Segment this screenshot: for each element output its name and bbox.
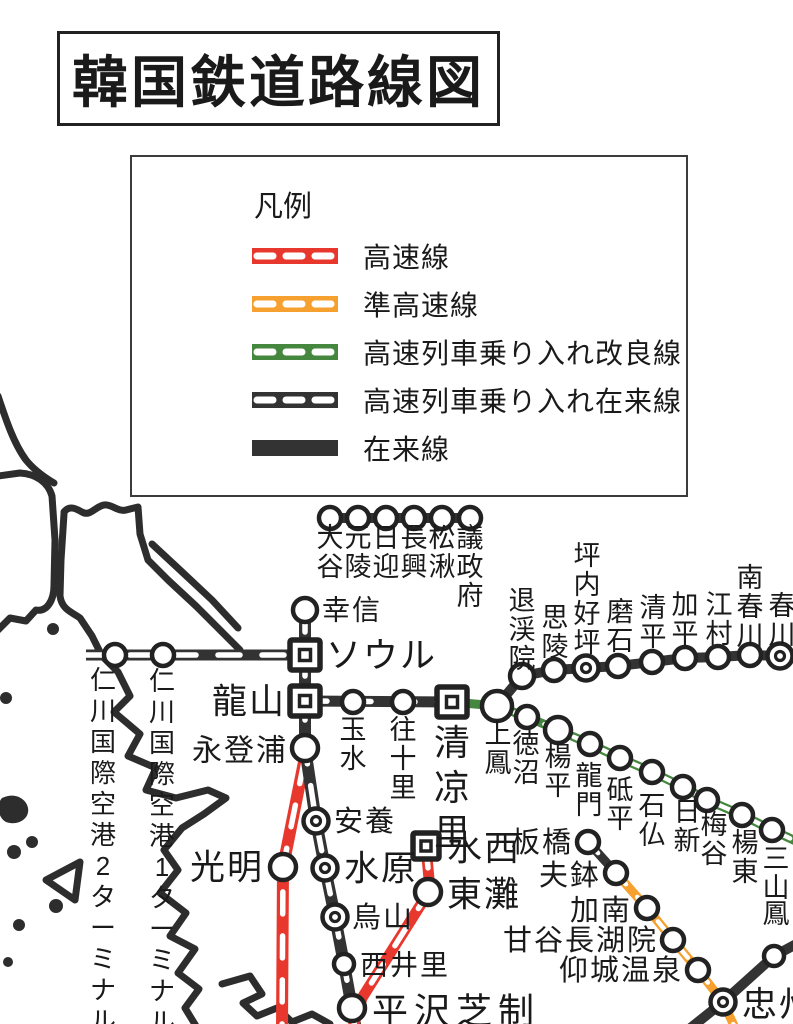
island [49,899,63,913]
station-marker-circle [731,804,753,826]
station-label: 元陵 [345,523,372,582]
station-label: 加平 [672,590,699,649]
station-label: 長興 [401,523,428,582]
station-label: 徳沼 [513,729,540,788]
station-marker-square-inner [421,841,431,851]
coastline-path [0,396,54,483]
rail-line-gyeongchun [497,655,780,706]
station-label: 甘谷長湖院 [503,924,658,957]
station-marker-square-inner [300,696,311,707]
station-marker-circle [687,959,709,981]
station-marker-circle [605,862,627,884]
island [7,845,21,859]
station-marker-circle [607,655,629,677]
railway-map: 大谷元陵日迎長興松湫議政府仁川国際空港2ターミナル仁川国際空港1ターミナル幸信ソ… [0,0,793,1024]
island [47,623,59,635]
station-label: 思陵 [542,603,569,662]
station-label: 東灘 [447,876,521,915]
station-label: 加南 [570,894,632,927]
station-marker-double-inner [582,664,591,673]
station-label: 龍門 [576,761,603,820]
station-label: 幸信 [322,595,382,626]
station-label: 松湫 [429,523,456,582]
station-marker-circle [516,706,538,728]
legend-swatch-hsr [249,246,341,266]
station-marker-square-inner [300,650,311,661]
island [13,919,25,931]
station-label: 楊平 [545,742,572,801]
legend-label: 高速列車乗り入れ改良線 [363,332,682,372]
island [3,957,13,967]
island [0,796,28,824]
station-marker-circle [636,897,658,919]
station-label: 光明 [190,849,264,888]
island [0,692,12,704]
station-marker-circle [707,646,729,668]
station-label: 梅谷 [701,810,728,869]
station-marker-circle [543,659,565,681]
station-marker-circle [292,735,318,761]
station-label: 玉水 [340,715,367,774]
station-marker-circle [579,733,601,755]
legend-item: 準高速線 [249,289,686,318]
station-label: 水原 [344,850,418,889]
legend-swatch-hst_conventional [249,390,341,410]
station-label: 平沢芝制 [372,991,540,1024]
page-title: 韓国鉄道路線図 [72,38,485,119]
station-marker-circle [672,776,694,798]
station-label: 西井里 [360,950,450,981]
station-label: 退渓院 [509,586,536,674]
legend-label: 在来線 [363,428,450,468]
station-label: 江村 [706,590,733,649]
legend-item: 高速列車乗り入れ在来線 [249,385,686,414]
legend-box: 凡例 高速線準高速線高速列車乗り入れ改良線高速列車乗り入れ在来線在来線 [130,155,688,497]
station-marker-circle [577,831,599,853]
coastline-path [0,473,55,630]
station-marker-circle [761,819,783,841]
station-marker-double-inner [776,652,785,661]
station-marker-circle [674,647,696,669]
station-label: 南春川 [737,563,764,651]
island [46,862,80,900]
legend-rows: 高速線準高速線高速列車乗り入れ改良線高速列車乗り入れ在来線在来線 [132,241,686,462]
station-marker-circle [270,854,296,880]
station-marker-double-inner [719,998,728,1007]
station-marker-circle [482,691,512,721]
station-marker-square-inner [447,697,458,708]
station-label: 石仏 [639,791,666,850]
station-label: 大谷 [317,523,344,582]
legend-swatch-hst_improved [249,342,341,362]
station-marker-circle [609,747,631,769]
coastline-path [222,976,330,1024]
station-label: 鳳 [763,899,790,929]
title-box: 韓国鉄道路線図 [57,31,500,126]
station-label: ソウル [326,637,437,676]
station-marker-circle [415,879,441,905]
station-label: 上鳳 [485,719,512,778]
station-label: 春川 [769,591,793,650]
legend-swatch-conventional [249,438,341,458]
station-marker-circle [334,954,354,974]
station-marker-circle [104,644,126,666]
station-label: 水西 [447,830,521,869]
station-label: 夫鉢 [539,859,601,892]
station-label: 仁川国際空港2ターミナル [90,665,116,1024]
station-label: 仰城温泉 [559,954,683,987]
coastline-path [152,544,238,628]
station-label: 三山 [763,844,790,903]
legend-item: 高速線 [249,241,686,270]
station-label: 往十里 [390,715,417,803]
station-label: 坪内好坪 [574,541,601,658]
island [26,836,38,848]
station-label: 安養 [334,805,396,838]
station-label: 忠州 [742,986,793,1024]
station-label: 砥平 [607,775,634,834]
station-marker-double-inner [331,913,340,922]
station-marker-circle [641,761,663,783]
legend-label: 準高速線 [363,284,479,324]
station-label: 日迎 [373,523,400,582]
legend-label: 高速列車乗り入れ在来線 [363,380,682,420]
station-marker-circle [293,598,317,622]
station-label: 磨石 [607,597,634,656]
legend-heading: 凡例 [254,183,686,225]
station-label: 楊東 [732,828,759,887]
station-marker-circle [152,644,174,666]
station-label: 龍山 [212,683,286,722]
korea-rail-map-page: 大谷元陵日迎長興松湫議政府仁川国際空港2ターミナル仁川国際空港1ターミナル幸信ソ… [0,0,793,1024]
station-marker-circle [764,946,784,966]
station-marker-circle [662,929,684,951]
station-marker-double-inner [321,864,330,873]
station-label: 永登浦 [192,735,288,768]
station-label: 清平 [640,593,667,652]
station-label: 烏山 [352,901,414,934]
station-marker-circle [342,691,364,713]
station-marker-circle [339,995,365,1021]
legend-item: 高速列車乗り入れ改良線 [249,337,686,366]
legend-label: 高速線 [363,236,450,276]
station-label: 議政府 [457,523,484,611]
legend-swatch-semi_hsr [249,294,341,314]
legend-item: 在来線 [249,433,686,462]
station-marker-circle [392,691,414,713]
station-label: 日新 [674,797,701,856]
station-marker-circle [545,717,571,743]
station-marker-circle [641,651,663,673]
station-marker-double-inner [312,817,321,826]
station-label: 仁川国際空港1ターミナル [149,666,175,1024]
